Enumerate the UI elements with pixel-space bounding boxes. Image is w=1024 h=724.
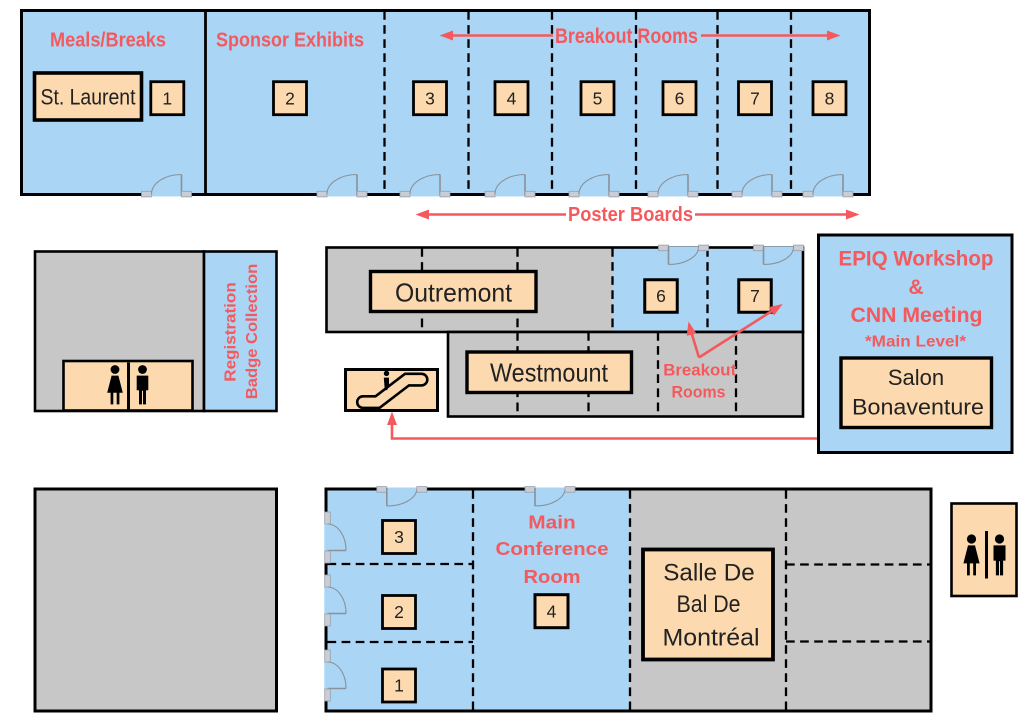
svg-text:7: 7 xyxy=(750,88,760,108)
svg-text:&: & xyxy=(908,276,923,299)
svg-text:Bonaventure: Bonaventure xyxy=(852,395,984,420)
svg-text:8: 8 xyxy=(825,88,835,108)
svg-text:Badge Collection: Badge Collection xyxy=(244,264,261,400)
svg-text:7: 7 xyxy=(750,286,760,306)
svg-text:CNN Meeting: CNN Meeting xyxy=(851,304,983,327)
svg-text:5: 5 xyxy=(593,88,603,108)
svg-text:Sponsor Exhibits: Sponsor Exhibits xyxy=(216,30,364,52)
svg-text:1: 1 xyxy=(162,88,172,108)
svg-text:Room: Room xyxy=(524,566,581,587)
svg-text:Main: Main xyxy=(528,511,576,532)
svg-text:Breakout Rooms: Breakout Rooms xyxy=(555,25,698,48)
svg-text:Bal De: Bal De xyxy=(677,591,741,618)
svg-text:4: 4 xyxy=(507,88,517,108)
svg-text:EPIQ Workshop: EPIQ Workshop xyxy=(839,247,994,270)
svg-text:Conference: Conference xyxy=(496,538,609,559)
svg-text:3: 3 xyxy=(425,88,435,108)
svg-text:1: 1 xyxy=(394,676,404,696)
svg-text:Rooms: Rooms xyxy=(672,382,726,401)
svg-text:Montréal: Montréal xyxy=(663,625,760,652)
svg-text:2: 2 xyxy=(285,88,295,108)
svg-text:6: 6 xyxy=(675,88,685,108)
svg-text:Poster Boards: Poster Boards xyxy=(568,204,693,226)
svg-text:Salon: Salon xyxy=(888,365,944,390)
svg-text:*Main Level*: *Main Level* xyxy=(865,334,967,351)
svg-text:Westmount: Westmount xyxy=(490,358,609,388)
svg-text:Registration: Registration xyxy=(223,282,240,382)
svg-text:Breakout: Breakout xyxy=(663,360,736,379)
svg-text:2: 2 xyxy=(394,602,404,622)
svg-text:Meals/Breaks: Meals/Breaks xyxy=(50,30,166,52)
svg-text:Salle De: Salle De xyxy=(663,560,755,587)
svg-text:3: 3 xyxy=(394,527,404,547)
svg-text:4: 4 xyxy=(547,601,557,621)
svg-text:Outremont: Outremont xyxy=(395,278,513,308)
svg-text:St. Laurent: St. Laurent xyxy=(41,85,136,110)
svg-text:6: 6 xyxy=(656,286,666,306)
